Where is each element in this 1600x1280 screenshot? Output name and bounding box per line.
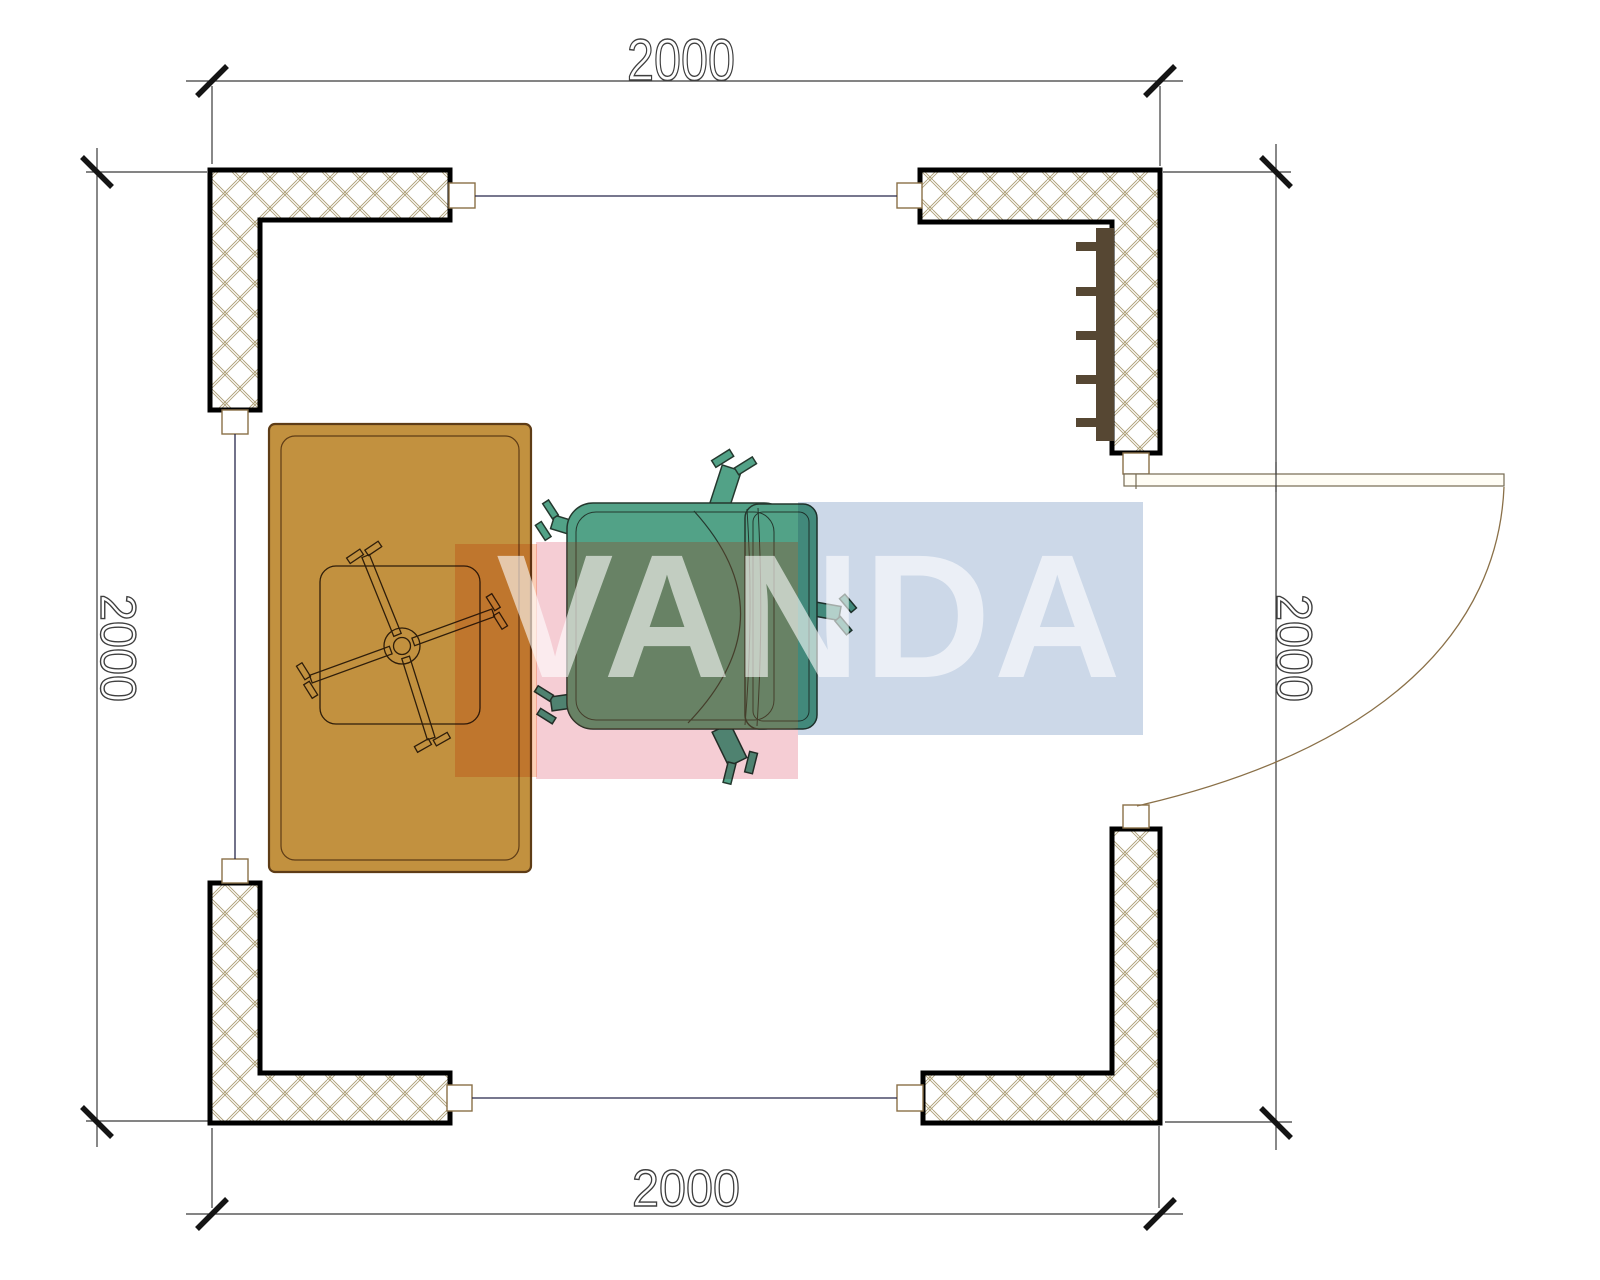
svg-text:2000: 2000 xyxy=(1266,594,1322,702)
svg-text:2000: 2000 xyxy=(90,594,146,702)
svg-text:VANDA: VANDA xyxy=(496,519,1124,715)
svg-text:2000: 2000 xyxy=(632,1160,740,1218)
svg-text:2000: 2000 xyxy=(627,28,735,93)
